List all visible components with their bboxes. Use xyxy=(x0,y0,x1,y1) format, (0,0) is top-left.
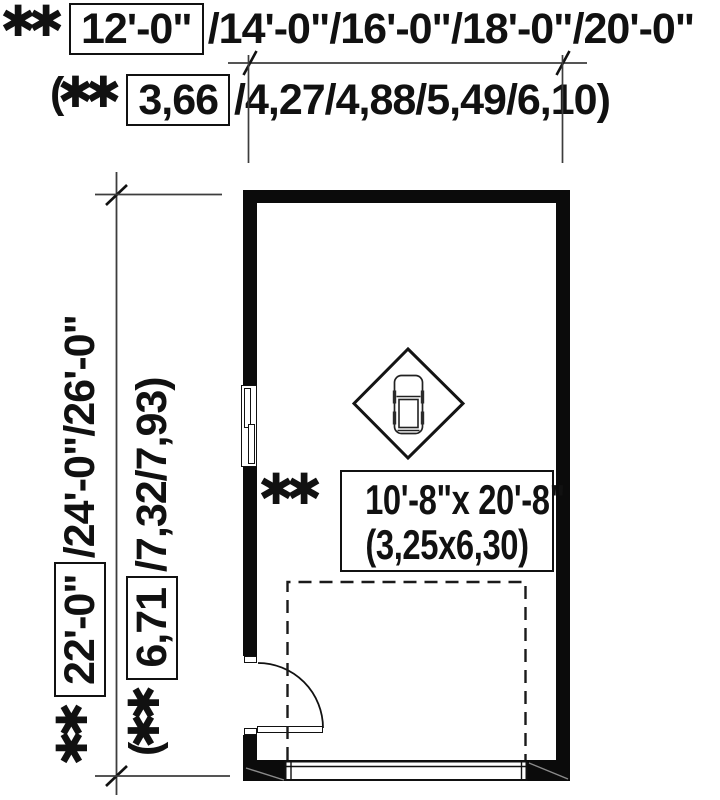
width-dimension-meters-row: (✱ ✱ 3,66 /4,27/4,88/5,49/6,10) xyxy=(50,71,610,129)
width-asterisks: ✱ ✱ xyxy=(0,1,57,44)
door-opening xyxy=(243,656,257,735)
width-feet-options: /14'-0"/16'-0"/18'-0"/20'-0" xyxy=(208,8,695,51)
depth-feet-options: /24'-0"/26'-0" xyxy=(59,315,102,558)
width-meters-prefix: (✱ ✱ xyxy=(50,72,114,115)
garage-size-metric: (3,25x6,30) xyxy=(365,522,529,567)
depth-meters-boxed-value: 6,71 xyxy=(126,576,178,680)
width-meters-options: /4,27/4,88/5,49/6,10) xyxy=(234,79,610,122)
garage-label-asterisks: ✱ ✱ xyxy=(258,469,315,512)
width-meters-boxed-value: 3,66 xyxy=(126,74,230,126)
depth-dim-tick-top xyxy=(106,185,127,205)
depth-meters-prefix: (✱ ✱ xyxy=(124,692,167,756)
door-leaf xyxy=(257,726,323,733)
depth-feet-boxed-value: 22'-0" xyxy=(54,562,106,697)
depth-asterisks: ✱ ✱ xyxy=(52,709,95,766)
garage-size-label: 10'-8"x 20'-8" (3,25x6,30) xyxy=(340,470,554,572)
depth-dimension-meters-column: (✱ ✱ 6,71 /7,32/7,93) xyxy=(120,316,184,756)
door-jamb-bottom xyxy=(244,728,257,735)
door-jamb-top xyxy=(244,656,257,663)
garage-size-imperial: 10'-8"x 20'-8" xyxy=(365,477,529,522)
window-sash-upper xyxy=(244,388,251,428)
width-dimension-feet-row: ✱ ✱ 12'-0" /14'-0"/16'-0"/18'-0"/20'-0" xyxy=(0,1,694,57)
width-feet-boxed-value: 12'-0" xyxy=(69,3,204,55)
depth-dim-tick-bottom xyxy=(106,766,127,786)
garage-label-asterisks-wrap: ✱ ✱ xyxy=(258,470,315,510)
window-sash-lower xyxy=(248,424,255,464)
depth-meters-options: /7,32/7,93) xyxy=(131,377,174,572)
depth-dimension-feet-column: ✱ ✱ 22'-0" /24'-0"/26'-0" xyxy=(48,276,112,766)
